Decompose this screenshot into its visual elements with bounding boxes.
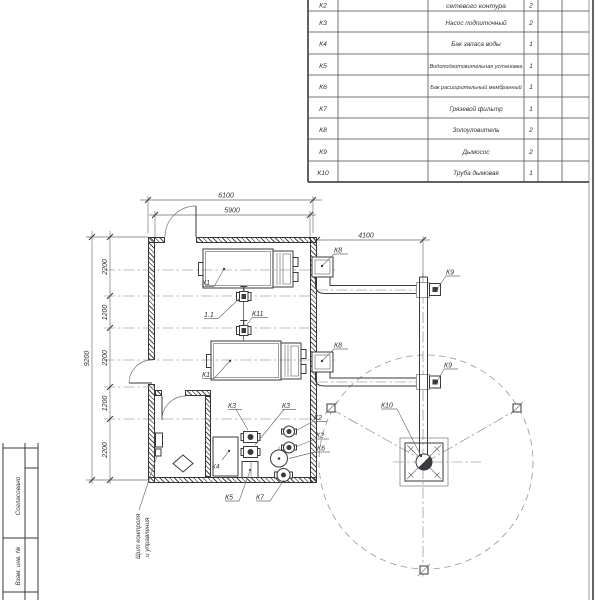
row-name: Бак запаса воды bbox=[451, 40, 501, 48]
row-pos: К10 bbox=[317, 170, 329, 177]
row-qty: 1 bbox=[529, 106, 533, 113]
row-pos: К7 bbox=[319, 106, 327, 113]
fan-k9-label: К9 bbox=[444, 363, 452, 370]
row-name: Бак расширительный мембранный bbox=[430, 84, 521, 91]
title-block-agreed: Согласовано bbox=[15, 476, 22, 515]
dimension-overall-height: 9200 bbox=[84, 231, 95, 484]
expansion-tank-k6: К6 bbox=[271, 446, 331, 468]
ash-k8-label: К8 bbox=[334, 248, 342, 255]
row-pos: К6 bbox=[319, 84, 327, 91]
chimney-k10: К10 bbox=[381, 403, 448, 487]
ash-collector-k8-top: К8 bbox=[312, 248, 419, 294]
dim-text: 4100 bbox=[358, 233, 374, 240]
title-block-vzam: Взам. инв. № bbox=[15, 546, 22, 585]
centerlines bbox=[104, 270, 516, 577]
row-name: Труба дымовая bbox=[453, 169, 499, 177]
stack-k10-label: К10 bbox=[381, 403, 393, 410]
row-qty: 2 bbox=[528, 3, 533, 10]
pump-k3-label: К3 bbox=[228, 403, 236, 410]
tank-k4-label: К4 bbox=[212, 464, 220, 471]
water-treatment-k5: К5 bbox=[225, 462, 258, 502]
boiler-k1-top: К1 bbox=[199, 249, 299, 288]
table-row: К2 сетевого контура 2 bbox=[319, 3, 533, 11]
table-row: К8 Золоуловитель 2 bbox=[319, 127, 533, 134]
row-pos: К9 bbox=[319, 149, 327, 156]
storage-tank-k4: К4 bbox=[212, 437, 238, 476]
control-panel bbox=[156, 433, 163, 456]
row-name: Насос подпиточный bbox=[445, 19, 507, 27]
dimension-top-inner: 5900 bbox=[149, 208, 316, 238]
door-left bbox=[129, 360, 152, 383]
drawing-sheet: Согласовано Взам. инв. № К2 сетевого кон… bbox=[0, 0, 600, 600]
valve-k11: К11 bbox=[237, 311, 269, 336]
title-block: Согласовано Взам. инв. № bbox=[3, 443, 38, 600]
boiler-label: К1 bbox=[202, 280, 210, 287]
row-name: Дымосос bbox=[461, 149, 490, 156]
filter-k7: К7 bbox=[256, 469, 293, 502]
row-qty: 1 bbox=[529, 63, 533, 70]
callout-line: Щит контроля bbox=[135, 513, 142, 559]
row-qty: 2 bbox=[528, 149, 533, 156]
row-name: Водоподготовительная установка bbox=[430, 64, 523, 70]
row-pos: К4 bbox=[319, 41, 327, 48]
door-top bbox=[165, 206, 196, 237]
drawing-linework: Согласовано Взам. инв. № К2 сетевого кон… bbox=[0, 0, 600, 600]
dim-text: 5900 bbox=[224, 208, 240, 215]
row-name: Грязевой фильтр bbox=[449, 105, 503, 113]
row-qty: 1 bbox=[529, 84, 533, 91]
row-name: Золоуловитель bbox=[452, 127, 499, 134]
table-row: К5 Водоподготовительная установка 1 bbox=[319, 63, 533, 70]
dim-text: 9200 bbox=[84, 351, 91, 367]
row-pos: К8 bbox=[319, 127, 327, 134]
dim-text: 2200 bbox=[102, 350, 109, 367]
dimension-left-chain: 2200 1200 2200 1200 2200 bbox=[86, 231, 148, 484]
table-row: К10 Труба дымовая 1 bbox=[317, 169, 533, 177]
vertical-flue-duct bbox=[420, 277, 428, 455]
floor-drain bbox=[173, 455, 193, 472]
ash-collector-k8-bottom: К8 bbox=[312, 343, 419, 387]
row-qty: 2 bbox=[528, 127, 533, 134]
fan-k9-label: К9 bbox=[446, 270, 454, 277]
valve-label: К11 bbox=[252, 311, 263, 318]
dim-text: 2200 bbox=[102, 259, 109, 276]
pump-k3-label: К3 bbox=[282, 403, 290, 410]
dim-text: 1200 bbox=[102, 396, 109, 412]
row-pos: К3 bbox=[319, 20, 327, 27]
spec-table: К2 сетевого контура 2 К3 Насос подпиточн… bbox=[308, 0, 589, 182]
valve-label: 1.1 bbox=[204, 312, 214, 319]
row-pos: К2 bbox=[319, 3, 327, 10]
table-row: К4 Бак запаса воды 1 bbox=[319, 40, 533, 48]
table-row: К6 Бак расширительный мембранный 1 bbox=[319, 84, 533, 91]
table-row: К7 Грязевой фильтр 1 bbox=[319, 105, 533, 113]
boiler-k1-bottom: К1 bbox=[202, 341, 306, 380]
row-pos: К5 bbox=[319, 63, 327, 70]
tank-k6-label: К6 bbox=[317, 446, 325, 453]
row-qty: 2 bbox=[528, 20, 533, 27]
pump-k2-label: К2 bbox=[314, 415, 322, 422]
table-row: К3 Насос подпиточный 2 bbox=[319, 19, 533, 27]
callout-line: и управления bbox=[144, 517, 151, 557]
sheet-frame bbox=[589, 0, 593, 600]
guy-anchor bbox=[325, 402, 523, 576]
pump-k2-label: К2 bbox=[316, 433, 324, 440]
dim-text: 2200 bbox=[102, 442, 109, 459]
row-qty: 1 bbox=[529, 170, 533, 177]
row-qty: 1 bbox=[529, 41, 533, 48]
dim-text: 1200 bbox=[102, 305, 109, 321]
control-panel-callout: Щит контроля и управления bbox=[135, 456, 157, 559]
ash-k8-label: К8 bbox=[334, 343, 342, 350]
door-interior bbox=[162, 396, 186, 420]
table-row: К9 Дымосос 2 bbox=[319, 149, 533, 156]
filter-k7-label: К7 bbox=[256, 495, 265, 502]
dim-text: 6100 bbox=[218, 193, 234, 200]
water-k5-label: К5 bbox=[225, 495, 233, 502]
row-name: сетевого контура bbox=[446, 3, 506, 10]
boiler-label: К1 bbox=[202, 372, 210, 379]
